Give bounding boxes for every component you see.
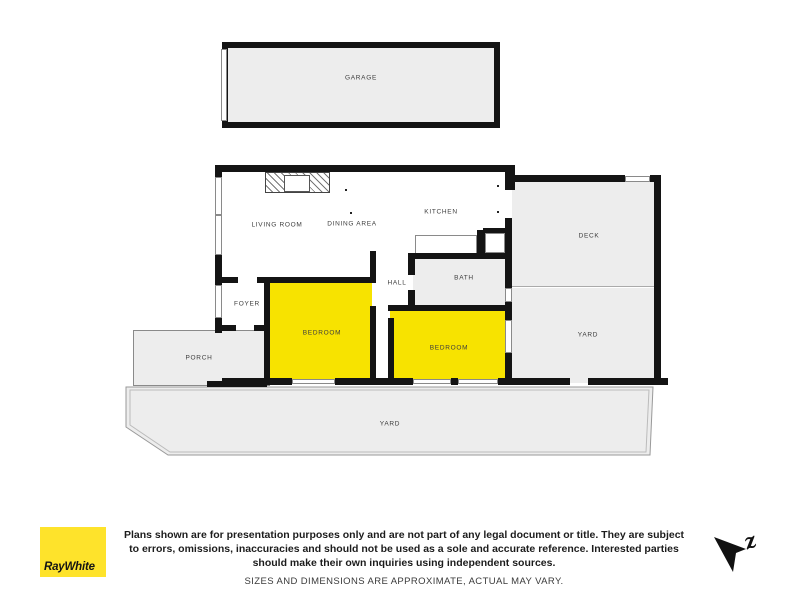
room-bedroom-2: [390, 307, 508, 380]
disclaimer-text: Plans shown are for presentation purpose…: [118, 529, 690, 571]
window: [505, 288, 512, 302]
room-label-foyer: FOYER: [234, 301, 260, 308]
window: [413, 379, 451, 384]
wall: [215, 165, 515, 172]
wall: [408, 253, 508, 259]
room-label-hall: HALL: [387, 280, 406, 287]
room-label-dining-area: DINING AREA: [327, 221, 377, 228]
wall: [254, 325, 270, 331]
wall: [505, 218, 512, 288]
wall: [498, 378, 570, 385]
room-label-bedroom-2: BEDROOM: [430, 345, 469, 352]
wall: [370, 251, 376, 283]
raywhite-logo-text: RayWhite: [44, 561, 95, 573]
wall: [505, 302, 512, 320]
wall: [335, 378, 413, 385]
window: [215, 285, 222, 318]
window: [458, 379, 498, 384]
raywhite-logo: RayWhite: [40, 527, 106, 577]
room-label-garage: GARAGE: [345, 75, 377, 82]
room-label-deck: DECK: [579, 233, 600, 240]
room-label-kitchen: KITCHEN: [424, 209, 457, 216]
room-garage: [222, 42, 500, 128]
window: [625, 176, 650, 182]
garage-door: [221, 49, 227, 121]
closet: [485, 233, 505, 253]
wall: [451, 378, 458, 385]
window: [292, 379, 335, 384]
wall: [408, 259, 415, 275]
room-label-bath: BATH: [454, 275, 474, 282]
wall: [370, 306, 376, 383]
window: [215, 215, 222, 255]
room-label-yard-bottom: YARD: [380, 421, 400, 428]
tick-mark: [350, 212, 352, 214]
sizes-note: SIZES AND DIMENSIONS ARE APPROXIMATE, AC…: [118, 576, 690, 587]
wall: [264, 277, 376, 283]
wall: [388, 305, 508, 311]
wall: [215, 318, 222, 333]
window: [215, 177, 222, 215]
room-label-porch: PORCH: [186, 355, 213, 362]
wall: [222, 325, 236, 331]
porch-step: [207, 381, 267, 387]
wall: [222, 277, 238, 283]
fireplace-opening: [284, 175, 310, 192]
north-arrow-icon: z: [698, 515, 788, 587]
wall: [654, 175, 661, 385]
kitchen-bench: [415, 235, 477, 255]
wall: [505, 172, 512, 190]
room-label-bedroom-1: BEDROOM: [303, 330, 342, 337]
wall: [588, 378, 668, 385]
tick-mark: [497, 211, 499, 213]
tick-mark: [345, 189, 347, 191]
room-label-living-room: LIVING ROOM: [251, 222, 302, 229]
window: [505, 320, 512, 353]
wall: [515, 175, 625, 182]
wall: [388, 318, 394, 383]
room-label-yard-right: YARD: [578, 332, 598, 339]
tick-mark: [497, 185, 499, 187]
wall: [215, 165, 222, 177]
room-bath: [413, 256, 508, 307]
wall: [215, 255, 222, 285]
